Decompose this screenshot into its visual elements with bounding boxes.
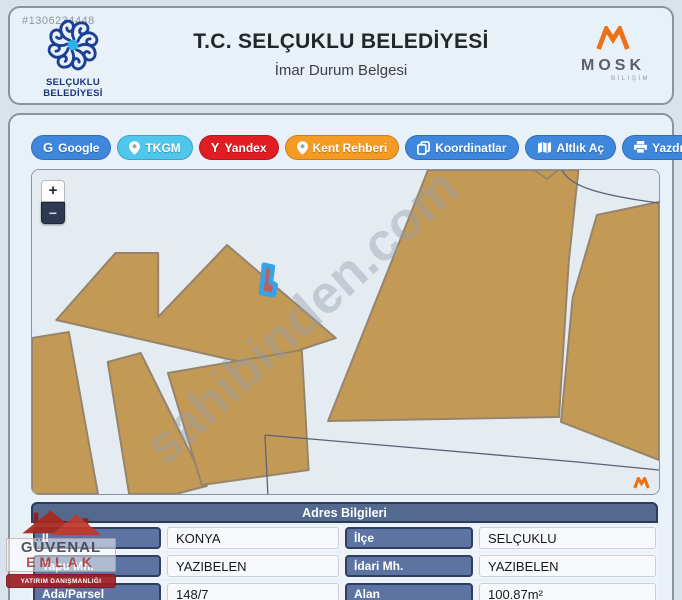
field-value-ada-parsel: 148/7 (167, 583, 339, 600)
table-row: Ada/Parsel148/7Alan100.87m² (31, 581, 658, 600)
field-value-i-l: KONYA (167, 527, 339, 549)
brand-name: MOSK (576, 57, 650, 75)
field-value-tapu-mh: YAZIBELEN (167, 555, 339, 577)
address-info-title: Adres Bilgileri (31, 502, 658, 523)
toolbar-button-tkgm[interactable]: TKGM (117, 135, 192, 160)
toolbar-button-altl-k-a[interactable]: Altlık Aç (525, 135, 617, 160)
agency-house-icon (18, 505, 104, 539)
brand-m-icon (594, 26, 632, 51)
toolbar-button-label: TKGM (145, 141, 180, 155)
toolbar-button-label: Yandex (224, 141, 266, 155)
address-info-section: Adres Bilgileri İlKONYAİlçeSELÇUKLUTapu … (31, 502, 658, 600)
municipality-logo: SELÇUKLU BELEDİYESİ (30, 18, 116, 100)
toolbar-button-label: Altlık Aç (557, 141, 605, 155)
pin-icon (297, 141, 308, 155)
pin-icon (129, 141, 140, 155)
toolbar-button-label: Yazdır (652, 141, 682, 155)
toolbar-button-label: Kent Rehberi (313, 141, 388, 155)
field-label-alan: Alan (345, 583, 473, 600)
toolbar-button-google[interactable]: GGoogle (31, 135, 111, 160)
agency-watermark: GÜVENAL EMLAK YATIRIM DANIŞMANLIĞI (6, 505, 116, 588)
layers-map-icon (537, 141, 552, 154)
field-label-i-dari-mh: İdari Mh. (345, 555, 473, 577)
toolbar-button-yazd-r[interactable]: Yazdır (622, 135, 682, 160)
google-icon: G (43, 141, 53, 154)
header-card: #1306234448 SELÇUKLU BELEDİYESİ T.C. SEL… (8, 6, 674, 105)
field-value-i-dari-mh: YAZIBELEN (479, 555, 656, 577)
map-brand-m-icon (633, 477, 650, 489)
agency-name: GÜVENAL (9, 540, 113, 555)
municipality-logo-text-line2: BELEDİYESİ (30, 88, 116, 99)
selected-parcel-highlight[interactable] (261, 265, 276, 295)
zoom-out-button[interactable]: − (41, 202, 65, 224)
table-row: Tapu Mh.YAZIBELENİdari Mh.YAZIBELEN (31, 553, 658, 579)
brand-logo: MOSK BİLİŞİM (576, 26, 650, 82)
agency-name-line2: EMLAK (9, 555, 113, 570)
copy-icon (417, 141, 430, 155)
toolbar: GGoogleTKGMYYandexKent RehberiKoordinatl… (31, 135, 658, 160)
printer-icon (634, 141, 647, 154)
zoom-in-button[interactable]: + (41, 180, 65, 202)
toolbar-button-label: Google (58, 141, 99, 155)
toolbar-button-label: Koordinatlar (435, 141, 506, 155)
municipality-logo-text-line1: SELÇUKLU (30, 77, 116, 88)
parcel-map[interactable]: sahibinden.com + − (31, 169, 660, 495)
toolbar-button-koordinatlar[interactable]: Koordinatlar (405, 135, 518, 160)
agency-tagline: YATIRIM DANIŞMANLIĞI (6, 574, 116, 588)
map-canvas: sahibinden.com (32, 170, 659, 494)
table-row: İlKONYAİlçeSELÇUKLU (31, 525, 658, 551)
brand-tagline: BİLİŞİM (576, 76, 650, 82)
address-info-rows: İlKONYAİlçeSELÇUKLUTapu Mh.YAZIBELENİdar… (31, 525, 658, 600)
field-value-alan: 100.87m² (479, 583, 656, 600)
field-value-i-l-e: SELÇUKLU (479, 527, 656, 549)
municipality-logo-icon (46, 18, 100, 72)
toolbar-button-yandex[interactable]: YYandex (199, 135, 279, 160)
yandex-icon: Y (211, 141, 220, 154)
toolbar-button-kent-rehberi[interactable]: Kent Rehberi (285, 135, 400, 160)
field-label-i-l-e: İlçe (345, 527, 473, 549)
